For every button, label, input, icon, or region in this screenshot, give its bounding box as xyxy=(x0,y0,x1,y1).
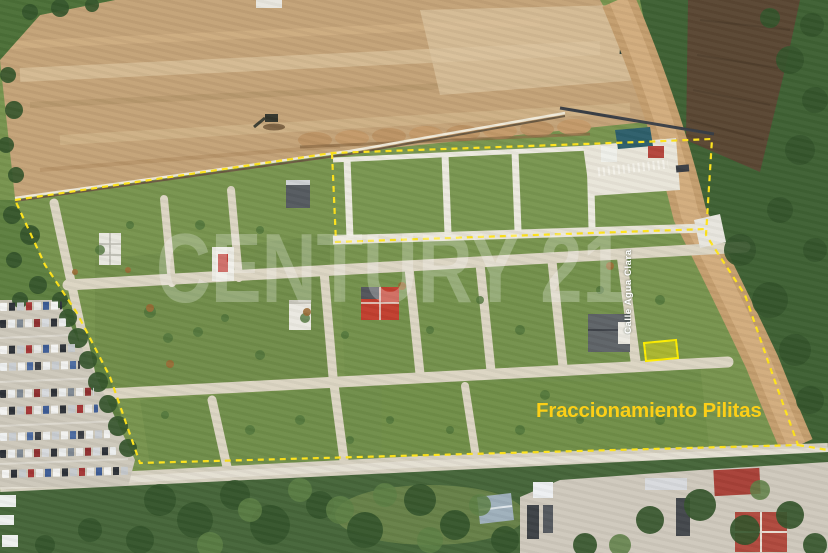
trucks xyxy=(527,505,539,539)
white-roofs-bottom-left xyxy=(0,495,16,507)
white-shed-yard xyxy=(533,482,553,498)
century21-watermark: CENTURY 21 xyxy=(156,220,625,319)
dark-roof-house xyxy=(286,180,310,208)
street-name-label: Calle Agua Clara xyxy=(623,256,634,334)
development-name-label: Fraccionamiento Pilitas xyxy=(536,399,762,423)
white-office xyxy=(601,146,617,162)
aerial-photo: CENTURY 21 Calle Agua Clara Fraccionamie… xyxy=(0,0,828,553)
red-roof-section xyxy=(648,146,664,158)
highlighted-lot[interactable] xyxy=(644,340,678,361)
parked-cars-row xyxy=(0,301,62,311)
teal-roof-building xyxy=(615,127,653,149)
